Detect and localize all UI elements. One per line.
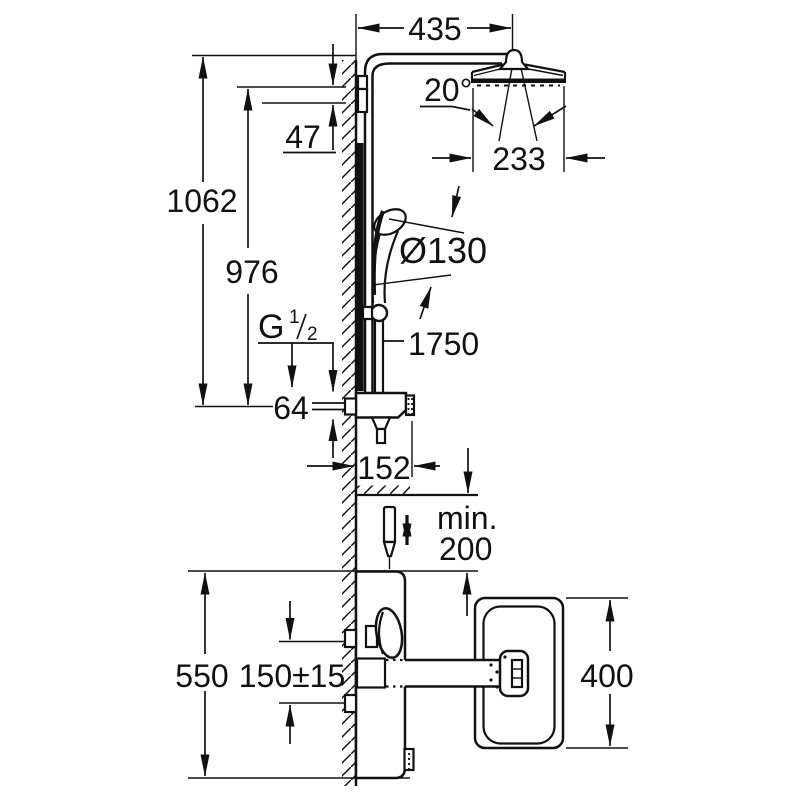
technical-drawing: 435 20° 233 1062 976 47 xyxy=(0,0,800,800)
hand-shower-diameter-dim-label: Ø130 xyxy=(399,230,487,271)
total-height-dim-label: 1062 xyxy=(166,183,237,219)
inlet-union xyxy=(312,399,356,415)
screwdriver-icon xyxy=(384,507,395,569)
slider-bracket xyxy=(363,307,372,319)
slider-holder xyxy=(371,305,387,321)
rail-bracket-lower xyxy=(358,89,367,112)
svg-text:2: 2 xyxy=(307,324,318,345)
thermostat-body xyxy=(356,393,406,418)
connection-spacing-dim-label: 150±15 xyxy=(239,658,346,694)
wall-union-lower xyxy=(345,695,356,712)
min-clearance-value-label: 200 xyxy=(439,531,492,567)
thread-label: G 1 2 xyxy=(258,307,334,387)
body-depth-dim-label: 152 xyxy=(357,450,410,486)
bracket-offset-dim-label: 47 xyxy=(285,119,321,155)
bath-spout-arm xyxy=(357,659,506,688)
shower-rail xyxy=(357,143,364,391)
head-diameter-dim-label: 233 xyxy=(492,141,545,177)
svg-text:1: 1 xyxy=(289,307,300,328)
rail-bracket-upper xyxy=(358,76,367,89)
body-height-dim-label: 64 xyxy=(273,390,309,426)
spray-angle-dim-label: 20° xyxy=(424,72,472,108)
svg-text:G: G xyxy=(258,308,284,346)
install-height-dim-label: 550 xyxy=(175,658,228,694)
shower-hose xyxy=(375,320,383,392)
rail-height-dim-label: 976 xyxy=(225,254,278,290)
control-knob-knurled xyxy=(406,396,414,416)
shelf-hatching xyxy=(356,486,410,495)
basin-width-dim-label: 400 xyxy=(580,658,633,694)
hose-connector xyxy=(405,749,414,770)
arm-projection-dim-label: 435 xyxy=(408,11,461,47)
spray-face xyxy=(471,79,566,84)
outlet-nipple xyxy=(372,418,390,444)
hose-length-dim-label: 1750 xyxy=(408,326,479,362)
wall-union-upper xyxy=(345,630,356,647)
